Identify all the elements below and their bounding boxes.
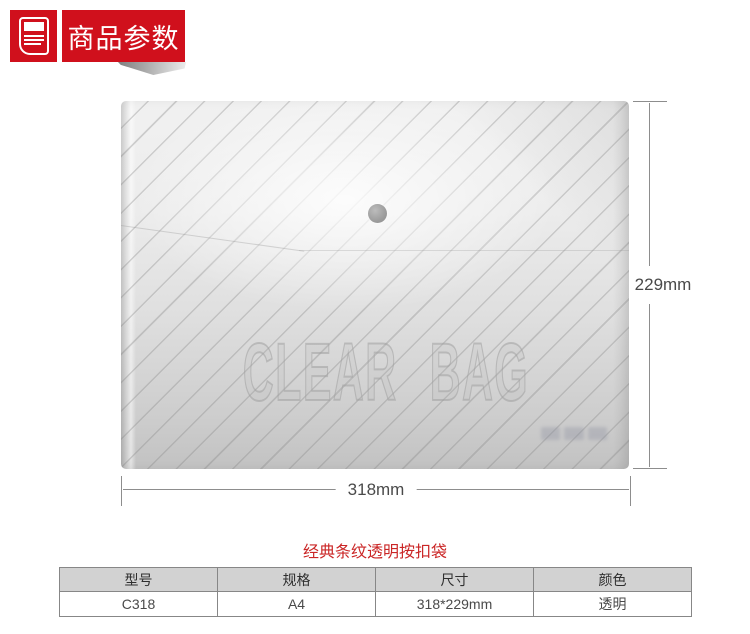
bag-flap-seam — [121, 225, 304, 252]
header-icon-box — [10, 10, 57, 62]
section-title-banner: 商品参数 — [62, 10, 185, 62]
width-dimension: 318mm — [121, 476, 631, 506]
spec-header-specification: 规格 — [218, 568, 376, 592]
spec-table-data-row: C318 A4 318*229mm 透明 — [60, 592, 692, 617]
spec-value-specification: A4 — [218, 592, 376, 617]
section-title: 商品参数 — [68, 17, 180, 56]
height-dimension: 229mm — [632, 101, 694, 469]
spec-header-model: 型号 — [60, 568, 218, 592]
document-icon — [19, 17, 49, 55]
height-dim-bottom-tick — [633, 468, 667, 469]
brand-watermark — [541, 427, 607, 440]
snap-button — [368, 204, 387, 223]
spec-value-color: 透明 — [534, 592, 692, 617]
product-parameters-page: 商品参数 CLEAR BAG 318mm 229mm 经典条纹透明按扣袋 型号 … — [0, 0, 750, 634]
height-dim-top-tick — [633, 101, 667, 102]
spec-table-header-row: 型号 规格 尺寸 颜色 — [60, 568, 692, 592]
spec-value-size: 318*229mm — [376, 592, 534, 617]
bag-print-text: CLEAR BAG — [243, 333, 507, 413]
width-dim-label: 318mm — [336, 476, 417, 503]
product-title: 经典条纹透明按扣袋 — [0, 538, 750, 562]
height-dim-label: 229mm — [632, 266, 694, 304]
spec-value-model: C318 — [60, 592, 218, 617]
banner-fold-ribbon — [118, 62, 186, 75]
spec-table: 型号 规格 尺寸 颜色 C318 A4 318*229mm 透明 — [59, 567, 692, 617]
product-image-clear-bag: CLEAR BAG — [121, 101, 629, 469]
width-dim-left-tick — [121, 476, 122, 506]
spec-header-color: 颜色 — [534, 568, 692, 592]
width-dim-right-tick — [630, 476, 631, 506]
bag-flap-seam-horizontal — [299, 250, 629, 251]
spec-header-size: 尺寸 — [376, 568, 534, 592]
